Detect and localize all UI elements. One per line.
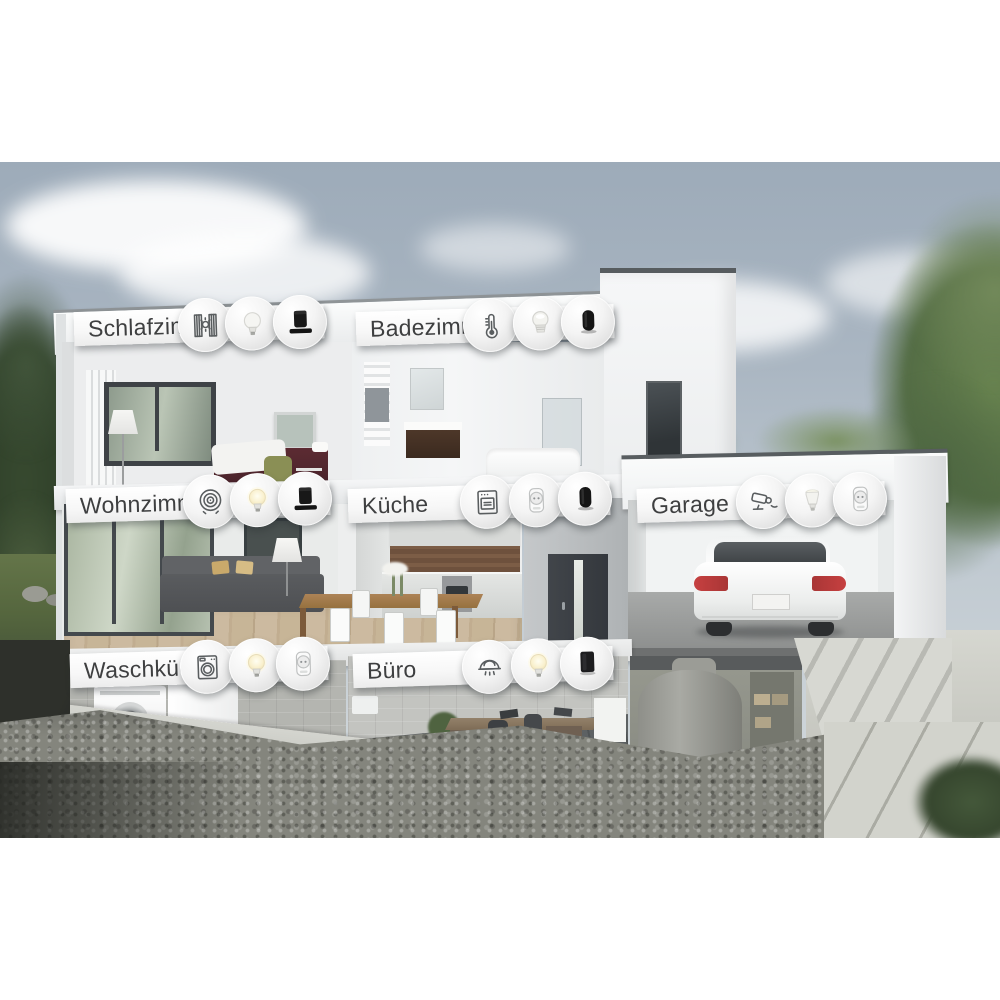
door-handle <box>562 602 565 610</box>
room-label-group-kueche: Küche <box>348 481 615 523</box>
room-label-group-schlafzimmer: Schlafzimmer <box>74 304 335 346</box>
pillow <box>211 560 229 575</box>
car <box>692 536 848 638</box>
cellar-ceiling <box>630 656 802 670</box>
room-name: Garage <box>637 490 730 520</box>
vanity-top <box>404 422 462 430</box>
sideboard <box>594 698 626 742</box>
garage-right-pillar <box>894 456 946 648</box>
pillow <box>312 442 328 452</box>
dining-chair <box>436 610 456 644</box>
door-glass <box>574 560 583 646</box>
car-taillight-left <box>694 576 728 591</box>
dining-chair <box>330 608 350 642</box>
car-wheel <box>808 622 834 636</box>
house-cutaway-scene: Schlafzimmer Badezimmer Wohnzimmer Küche… <box>0 162 1000 838</box>
laptop <box>554 707 573 717</box>
room-label-group-badezimmer: Badezimmer <box>356 304 623 346</box>
floor-lamp-pole <box>286 562 288 596</box>
car-taillight-right <box>812 576 846 591</box>
wall-heater <box>352 696 378 714</box>
room-name: Büro <box>353 656 417 685</box>
car-wheel <box>706 622 732 636</box>
room-label-group-buero: Büro <box>353 646 618 688</box>
kitchen-backsplash <box>390 546 520 572</box>
vanity-cabinet <box>406 430 460 458</box>
room-bedroom <box>62 342 352 492</box>
towel <box>365 388 389 422</box>
room-label-group-waschkueche: Waschküche <box>70 646 333 688</box>
dining-chair <box>384 612 404 646</box>
floor-lamp-shade <box>272 538 302 562</box>
rocks <box>22 586 48 602</box>
smart-home-poster: Schlafzimmer Badezimmer Wohnzimmer Küche… <box>0 0 1000 1000</box>
floor-lamp-pole <box>122 434 124 486</box>
earth-shadow <box>0 762 240 838</box>
dining-chair <box>352 590 370 618</box>
room-bathroom <box>352 342 604 492</box>
room-name: Küche <box>348 490 429 520</box>
washer-panel <box>100 691 160 695</box>
side-table <box>296 468 322 471</box>
mirror <box>410 368 444 410</box>
room-label-group-garage: Garage <box>637 481 890 523</box>
room-label-group-wohnzimmer: Wohnzimmer <box>66 481 333 523</box>
storage-boxes <box>754 694 770 705</box>
table-leg <box>300 608 306 638</box>
door-frame <box>112 508 116 624</box>
flowers <box>382 562 408 576</box>
cloud <box>420 224 570 272</box>
pillow <box>235 560 253 574</box>
window-mullion <box>155 387 159 451</box>
car-bumper-line <box>702 616 838 618</box>
car-license-plate <box>752 594 790 610</box>
car-body <box>694 562 846 620</box>
